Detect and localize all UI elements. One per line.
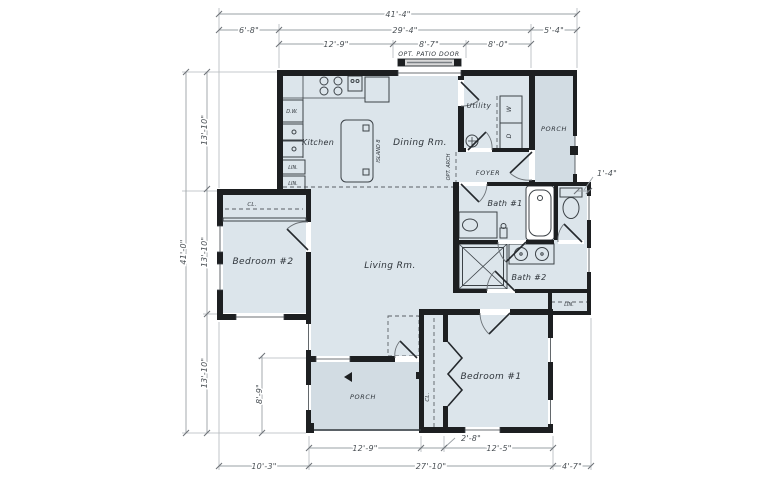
window [306, 385, 311, 410]
dim-bot-bedroom: 12'-5" [486, 444, 511, 453]
room-label-utility: Utility [467, 102, 492, 110]
wall-segment [573, 70, 577, 136]
dim-top-right: 5'-4" [544, 26, 564, 35]
dim-top-sub-right: 8'-0" [488, 40, 508, 49]
patio-door-symbol [398, 59, 461, 66]
wall-segment [306, 189, 311, 320]
window [316, 356, 350, 362]
window [306, 324, 311, 350]
wall-segment [443, 406, 448, 433]
dim-top-left: 6'-8" [239, 26, 259, 35]
window [217, 264, 223, 290]
label-dryer: D [506, 133, 513, 138]
label-island: ISLAND 8 [376, 139, 382, 162]
dim-bot-mid: 27'-10" [416, 462, 447, 471]
wall-segment [277, 70, 283, 195]
dim-top-sub-mid: 8'-7" [419, 40, 439, 49]
dim-top-sub-left: 12'-9" [323, 40, 348, 49]
wall-segment [419, 309, 424, 433]
label-washer: W [506, 105, 513, 112]
dim-bot-left: 10'-3" [251, 462, 276, 471]
room-label-bedroom1: Bedroom #1 [460, 372, 521, 382]
fill-kitchen-dining-utility [279, 72, 531, 184]
dim-bot-closet: 2'-8" [461, 434, 481, 443]
dim-left-overall: 41'-0" [179, 239, 188, 264]
dim-bot-right: 4'-7" [562, 462, 582, 471]
window [217, 226, 223, 252]
wall-segment [453, 182, 459, 293]
room-label-bath2: Bath #2 [511, 273, 546, 282]
window [236, 314, 284, 320]
wall-segment [548, 311, 591, 315]
dim-top-mid: 29'-4" [392, 26, 417, 35]
fill-bedroom1 [421, 311, 551, 431]
wall-segment [217, 189, 223, 320]
wall-segment [443, 315, 448, 342]
floor-plan-drawing: Kitchen Dining Rm. Living Rm. Bedroom #2… [0, 0, 780, 488]
window [548, 338, 553, 362]
room-label-living: Living Rm. [364, 261, 416, 271]
dim-top-overall: 41'-4" [385, 10, 410, 19]
label-opt-arch: OPT. ARCH [446, 153, 452, 180]
dim-left-porch: 8'-9" [255, 384, 264, 404]
window [587, 248, 591, 272]
dim-bot-porch: 12'-9" [352, 444, 377, 453]
room-label-foyer: FOYER [476, 169, 500, 177]
room-label-kitchen: Kitchen [302, 138, 334, 147]
room-label-bedroom2: Bedroom #2 [232, 257, 293, 267]
room-label-dining: Dining Rm. [393, 138, 447, 148]
dim-left-seg3: 13'-10" [200, 358, 209, 389]
label-linen-kitchen-1: LIN. [288, 165, 298, 171]
dim-left-seg1: 13'-10" [200, 115, 209, 146]
dim-right-offset: 1'-4" [597, 169, 617, 178]
porch-post [570, 146, 578, 155]
room-label-porch-upper: PORCH [541, 125, 567, 133]
label-opt-patio-door: OPT. PATIO DOOR [398, 51, 459, 58]
wall-segment [453, 289, 591, 293]
label-dishwasher: D.W. [286, 109, 298, 115]
fill-living-south [308, 313, 421, 358]
label-linen-bath: LIN. [564, 302, 574, 308]
wall-segment [217, 189, 311, 195]
wall-segment [554, 182, 558, 240]
window [587, 196, 591, 220]
window [465, 427, 500, 433]
room-label-porch-lower: PORCH [350, 393, 376, 401]
label-linen-kitchen-2: LIN. [288, 181, 298, 187]
floor-plan-page: Kitchen Dining Rm. Living Rm. Bedroom #2… [0, 0, 780, 488]
dim-left-seg2: 13'-10" [200, 237, 209, 268]
room-label-bath1: Bath #1 [487, 199, 522, 208]
porch-post [306, 423, 314, 433]
window [398, 70, 461, 76]
window [548, 400, 553, 424]
label-closet-bedroom1: CL. [425, 392, 431, 401]
label-closet-bedroom2: CL. [247, 202, 256, 208]
